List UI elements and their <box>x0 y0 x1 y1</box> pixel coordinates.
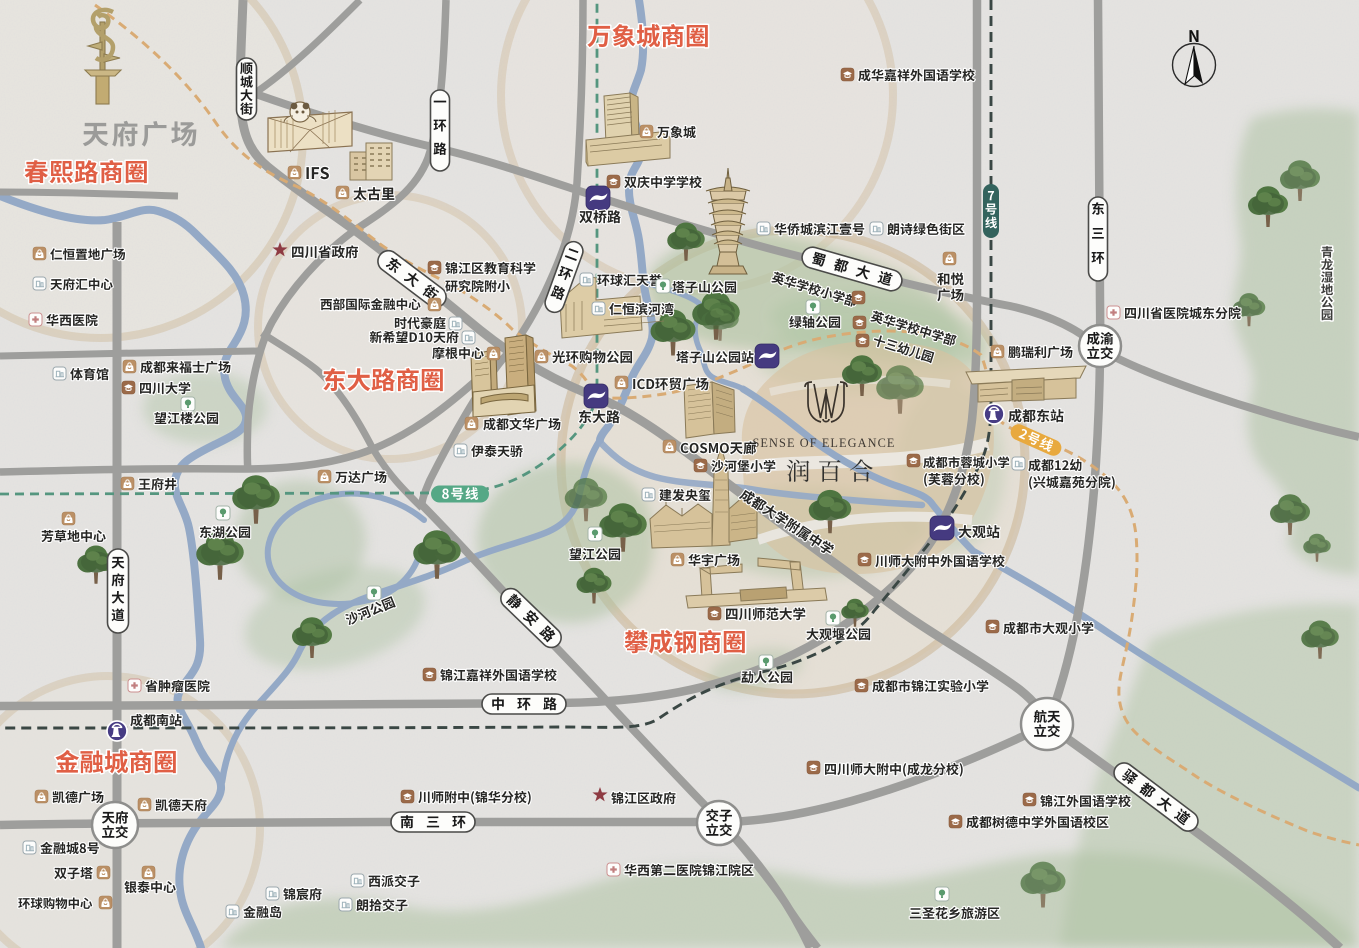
svg-text:SENSE OF ELEGANCE: SENSE OF ELEGANCE <box>752 436 895 450</box>
